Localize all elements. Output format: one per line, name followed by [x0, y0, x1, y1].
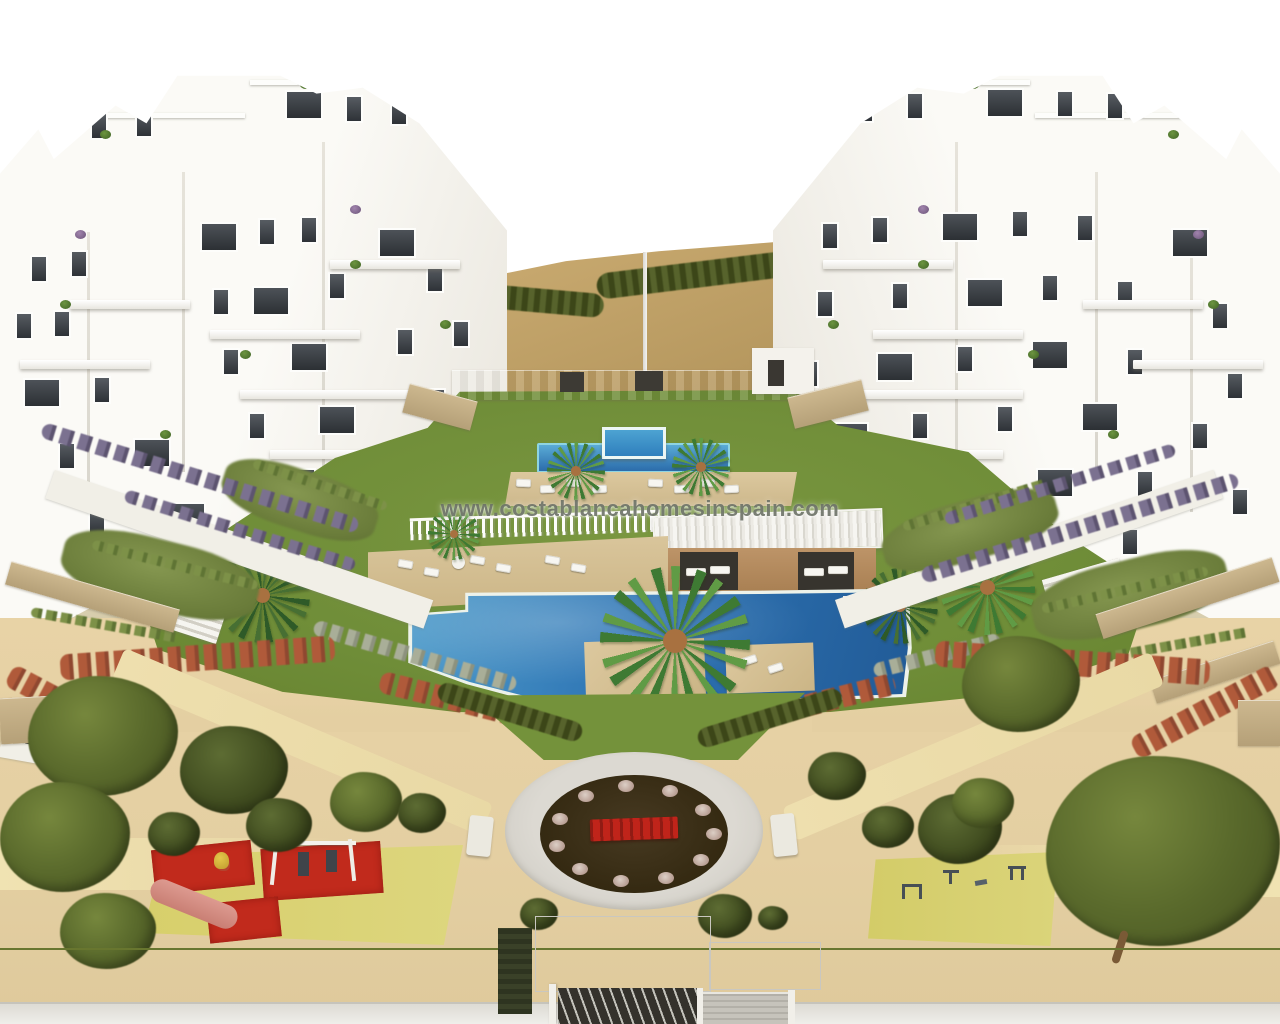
flower-shrub — [658, 872, 674, 884]
balcony — [20, 360, 150, 369]
balcony — [823, 260, 953, 269]
glazed-door — [878, 354, 912, 380]
glazed-door — [988, 90, 1022, 116]
exercise-equipment — [902, 886, 905, 899]
flower-shrub — [572, 863, 588, 875]
balcony-plant — [440, 320, 451, 329]
balcony-plant — [350, 260, 361, 269]
window — [17, 314, 31, 338]
window — [913, 414, 927, 438]
window — [32, 257, 46, 281]
glazed-door — [292, 344, 326, 370]
flower-shrub — [549, 840, 565, 852]
pool-house-door — [768, 360, 784, 386]
glazed-door — [287, 92, 321, 118]
window — [1013, 212, 1027, 236]
bougainvillea — [1193, 230, 1204, 239]
window — [908, 94, 922, 118]
sun-lounger — [648, 479, 663, 488]
glazed-door — [1083, 404, 1117, 430]
entrance-pillar — [549, 984, 556, 1024]
window — [823, 224, 837, 248]
window — [95, 378, 109, 402]
balcony-plant — [240, 350, 251, 359]
flower-shrub — [662, 785, 678, 797]
entrance-side-panel — [702, 992, 788, 1024]
window — [893, 284, 907, 308]
palm-tree — [672, 438, 730, 496]
aerial-render: www.costablancahomesinspain.com — [0, 0, 1280, 1024]
facade-seam — [322, 142, 325, 502]
entrance-canopy-roof — [709, 942, 821, 990]
facade-seam — [1190, 232, 1193, 512]
glazed-door — [380, 230, 414, 256]
exercise-equipment — [949, 872, 952, 884]
balcony-plant — [1108, 430, 1119, 439]
plaza-bench — [770, 813, 798, 857]
window — [1058, 92, 1072, 116]
balcony-plant — [60, 300, 71, 309]
glazed-door — [25, 380, 59, 406]
balcony — [70, 300, 190, 309]
balcony-plant — [1168, 130, 1179, 139]
stone-corner-wall — [1238, 700, 1280, 746]
daybed — [804, 568, 824, 576]
exercise-equipment — [1021, 868, 1024, 880]
window — [428, 267, 442, 291]
balcony — [240, 390, 430, 399]
balcony — [873, 330, 1023, 339]
balcony — [1133, 360, 1263, 369]
flower-shrub — [706, 828, 722, 840]
window — [1078, 216, 1092, 240]
kids-pool — [602, 427, 666, 459]
window — [1193, 424, 1207, 448]
glazed-door — [202, 224, 236, 250]
flower-shrub — [618, 780, 634, 792]
flower-shrub — [695, 804, 711, 816]
window — [60, 444, 74, 468]
swing-seat — [326, 850, 337, 872]
exercise-equipment — [1010, 868, 1013, 880]
glazed-door — [320, 407, 354, 433]
wall-gate — [560, 372, 584, 392]
balcony-plant — [100, 130, 111, 139]
plaza-red-bench — [590, 816, 679, 841]
balcony-plant — [160, 430, 171, 439]
balcony-plant — [1208, 300, 1219, 309]
window — [72, 252, 86, 276]
flower-shrub — [552, 813, 568, 825]
daybed — [828, 566, 848, 574]
entrance-pillar — [697, 988, 703, 1024]
glazed-door — [254, 288, 288, 314]
flower-shrub — [613, 875, 629, 887]
window — [873, 218, 887, 242]
window — [224, 350, 238, 374]
window — [1043, 276, 1057, 300]
facade-seam — [955, 142, 958, 502]
palm-tree — [547, 442, 605, 500]
window — [347, 97, 361, 121]
bougainvillea — [918, 205, 929, 214]
window — [1123, 530, 1137, 554]
exercise-area-surface — [868, 852, 1058, 946]
balcony — [210, 330, 360, 339]
balcony-plant — [918, 260, 929, 269]
watermark: www.costablancahomesinspain.com — [0, 496, 1280, 522]
window — [454, 322, 468, 346]
window — [998, 407, 1012, 431]
window — [398, 330, 412, 354]
retaining-wall — [452, 370, 802, 400]
exercise-equipment — [919, 886, 922, 899]
entrance-gate — [558, 988, 698, 1024]
facade-seam — [182, 172, 185, 472]
window — [250, 414, 264, 438]
balcony — [1083, 300, 1203, 309]
daybed — [710, 566, 730, 574]
wall-gate — [635, 371, 663, 391]
sun-lounger — [516, 479, 531, 488]
glazed-door — [968, 280, 1002, 306]
window — [260, 220, 274, 244]
window — [330, 274, 344, 298]
swing-seat — [298, 852, 309, 876]
window — [55, 312, 69, 336]
bougainvillea — [350, 205, 361, 214]
window — [958, 347, 972, 371]
glazed-door — [943, 214, 977, 240]
plaza-bench — [466, 815, 494, 857]
flower-shrub — [578, 790, 594, 802]
sun-lounger — [724, 485, 739, 494]
entrance-hedge-wall — [498, 928, 532, 1014]
bougainvillea — [75, 230, 86, 239]
flower-shrub — [693, 854, 709, 866]
entrance-pillar — [788, 990, 795, 1024]
facade-seam — [87, 232, 90, 512]
window — [302, 218, 316, 242]
window — [818, 292, 832, 316]
spring-rider-toy — [214, 852, 229, 869]
window — [1228, 374, 1242, 398]
balcony-plant — [828, 320, 839, 329]
entrance-canopy-roof — [535, 916, 711, 992]
balcony-plant — [1028, 350, 1039, 359]
window — [214, 290, 228, 314]
